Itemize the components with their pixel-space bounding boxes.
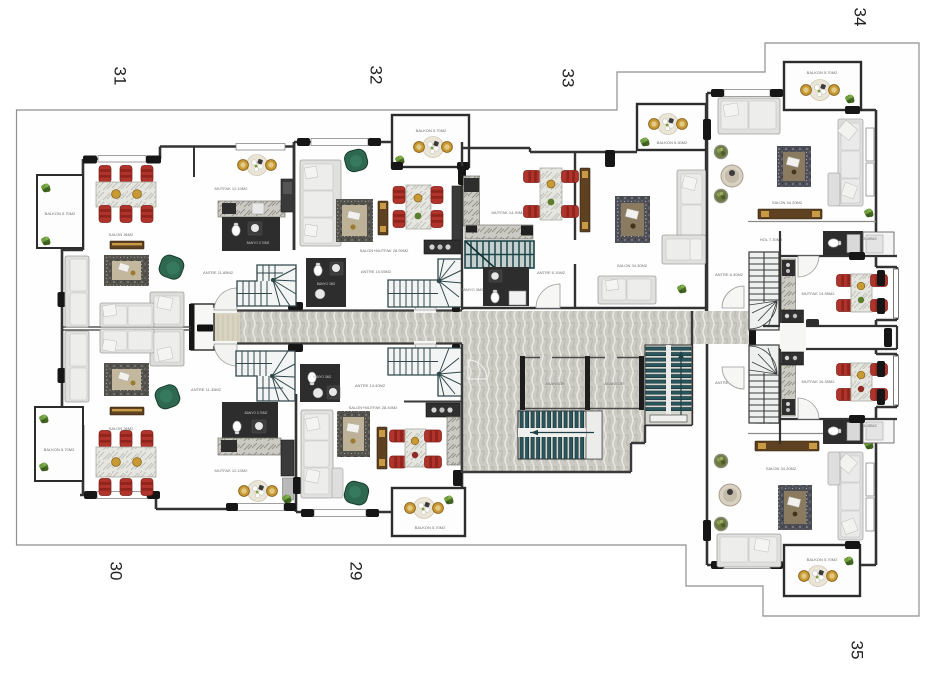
svg-text:SALON 36M2: SALON 36M2 [109,232,134,237]
svg-text:SALON+MUTFAK 28.40M2: SALON+MUTFAK 28.40M2 [349,405,399,410]
svg-text:BANYO 3.70M2: BANYO 3.70M2 [245,411,268,415]
svg-text:MUTFAK 12.10M2: MUTFAK 12.10M2 [215,468,249,473]
svg-text:29: 29 [347,562,366,581]
svg-text:BALKON 5.70M2: BALKON 5.70M2 [44,447,75,452]
svg-text:BALKON 5.70M2: BALKON 5.70M2 [415,525,446,530]
svg-text:BALKON 5.30M2: BALKON 5.30M2 [657,140,688,145]
svg-text:MUTFAK 12.10M2: MUTFAK 12.10M2 [215,186,249,191]
svg-text:BANYO 3M2: BANYO 3M2 [313,375,331,379]
svg-text:ANTRE 6.30M2: ANTRE 6.30M2 [715,272,744,277]
svg-text:ANTRE 11.85M2: ANTRE 11.85M2 [203,270,234,275]
svg-text:3.49M2: 3.49M2 [863,236,877,241]
svg-text:32: 32 [367,66,386,85]
svg-text:34: 34 [851,8,870,27]
svg-text:MUTFAK 14.30M2: MUTFAK 14.30M2 [492,210,526,215]
svg-text:4.45M2: 4.45M2 [863,423,877,428]
svg-text:ASANSÖR: ASANSÖR [604,381,624,386]
svg-text:BALKON 5.70M2: BALKON 5.70M2 [807,70,838,75]
svg-text:BALKON 5.70M2: BALKON 5.70M2 [416,128,447,133]
svg-text:BANYO 3M2: BANYO 3M2 [317,282,335,286]
svg-text:33: 33 [559,69,578,88]
svg-text:31: 31 [111,67,130,86]
svg-text:SALON 34.20M2: SALON 34.20M2 [772,200,803,205]
svg-text:30: 30 [107,562,126,581]
svg-text:BALKON 5.70M2: BALKON 5.70M2 [807,557,838,562]
svg-text:ANTRE 14.40M2: ANTRE 14.40M2 [355,383,386,388]
svg-text:SALON+MUTFAK 28.90M2: SALON+MUTFAK 28.90M2 [360,248,410,253]
svg-text:ANTRE 6.10M2: ANTRE 6.10M2 [537,270,566,275]
svg-text:35: 35 [848,641,867,660]
svg-text:BANYO 3M2: BANYO 3M2 [461,287,485,292]
svg-text:ANTRE 11.35M2: ANTRE 11.35M2 [191,387,222,392]
svg-text:SALON 36M2: SALON 36M2 [109,426,134,431]
svg-text:MUTFAK 16.35M2: MUTFAK 16.35M2 [802,379,836,384]
svg-text:BALKON 5.70M2: BALKON 5.70M2 [45,211,76,216]
svg-text:SALON 34.30M2: SALON 34.30M2 [617,263,648,268]
svg-text:MUTFAK 14.95M2: MUTFAK 14.95M2 [802,291,836,296]
svg-text:ASANSÖR: ASANSÖR [545,381,565,386]
svg-text:SALON 34.20M2: SALON 34.20M2 [766,466,797,471]
svg-text:ANTRE 10.05M2: ANTRE 10.05M2 [361,269,392,274]
svg-text:BANYO 3.70M2: BANYO 3.70M2 [247,241,270,245]
